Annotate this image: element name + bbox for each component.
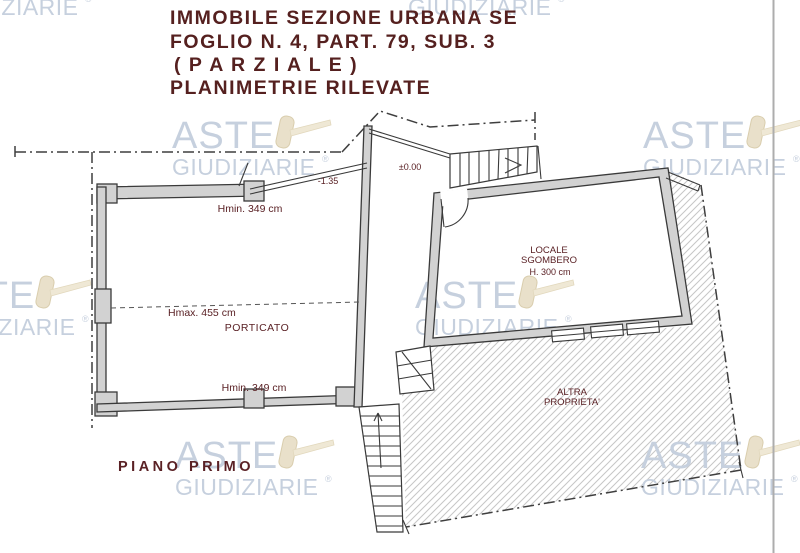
title-line-3: ( P A R Z I A L E )	[174, 54, 358, 76]
watermark-aste: ASTE	[0, 275, 35, 317]
window	[552, 328, 585, 342]
floor-plan-page: ASTE GIUDIZIARIE ® ASTE GIUDIZIARIE ® AS…	[0, 0, 800, 553]
floor-label: PIANO PRIMO	[118, 459, 254, 475]
watermark-giudiziarie: GIUDIZIARIE	[172, 154, 316, 180]
label-locale-line2: SGOMBERO	[521, 255, 577, 266]
watermark-aste: ASTE	[172, 115, 275, 157]
watermark-aste: ASTE	[641, 435, 744, 477]
registered-mark: ®	[325, 474, 332, 484]
registered-mark: ®	[85, 0, 92, 4]
watermark-giudiziarie: GIUDIZIARIE	[175, 474, 319, 500]
watermark-aste: ASTE	[643, 115, 746, 157]
label-hmax: Hmax. 455 cm	[168, 307, 236, 319]
label-hmin-bottom: Hmin. 349 cm	[222, 382, 287, 394]
registered-mark: ®	[565, 314, 572, 324]
winder-stairs	[396, 346, 434, 394]
window	[627, 321, 660, 335]
label-level-landing: ±0.00	[399, 162, 421, 172]
registered-mark: ®	[322, 154, 329, 164]
label-hmin-top: Hmin. 349 cm	[218, 203, 283, 215]
title-line-4: PLANIMETRIE RILEVATE	[170, 77, 431, 99]
registered-mark: ®	[791, 474, 798, 484]
label-level-terrace: -1.35	[318, 176, 339, 186]
registered-mark: ®	[558, 0, 565, 4]
registered-mark: ®	[793, 154, 800, 164]
label-locale-height: H. 300 cm	[529, 267, 570, 277]
watermark-giudiziarie: GIUDIZIARIE	[0, 0, 79, 20]
title-line-1: IMMOBILE SEZIONE URBANA SE	[170, 7, 518, 29]
title-line-2: FOGLIO N. 4, PART. 79, SUB. 3	[170, 31, 496, 53]
floor-plan-svg: ASTE GIUDIZIARIE ® ASTE GIUDIZIARIE ® AS…	[0, 0, 800, 553]
watermark-giudiziarie: GIUDIZIARIE	[0, 314, 76, 340]
label-altra-line2: PROPRIETA'	[544, 397, 600, 408]
registered-mark: ®	[82, 314, 89, 324]
window	[591, 324, 624, 338]
label-room-porticato: PORTICATO	[225, 322, 290, 334]
watermark-giudiziarie: GIUDIZIARIE	[641, 474, 785, 500]
